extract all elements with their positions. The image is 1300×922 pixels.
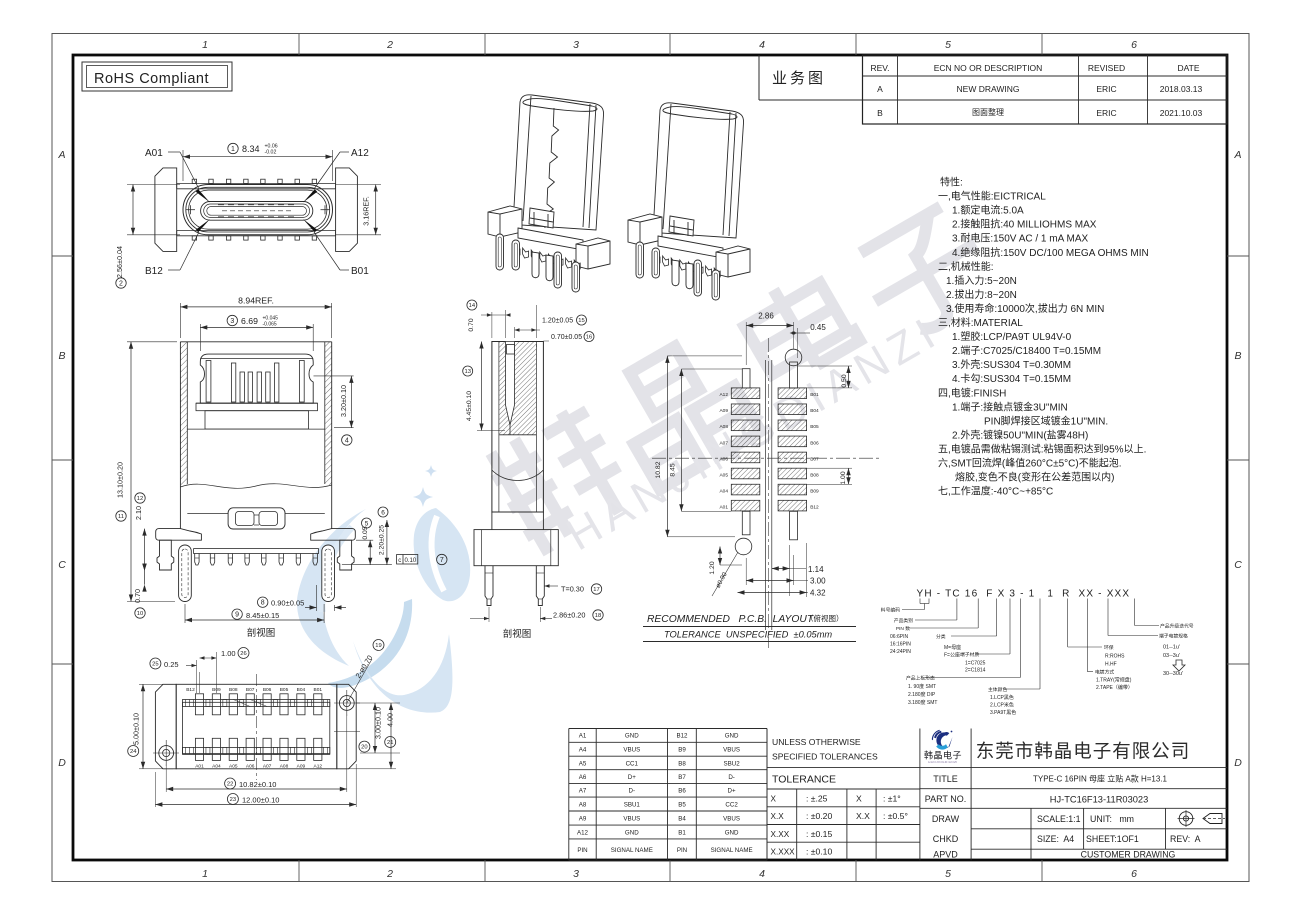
svg-text:剖视图: 剖视图 bbox=[247, 627, 276, 639]
svg-text:GND: GND bbox=[725, 829, 739, 836]
svg-text:A: A bbox=[1233, 149, 1241, 161]
svg-text:X.XXX: X.XXX bbox=[771, 848, 796, 857]
svg-text:X.XX: X.XX bbox=[771, 830, 790, 839]
svg-text:DRAW: DRAW bbox=[932, 814, 960, 824]
svg-text:SIZE: A4: SIZE: A4 bbox=[1037, 834, 1074, 844]
svg-text:01--1u': 01--1u' bbox=[1163, 645, 1180, 651]
svg-text:5.00±0.10: 5.00±0.10 bbox=[132, 713, 141, 745]
svg-text:1.TRAY(常规盘): 1.TRAY(常规盘) bbox=[1096, 677, 1132, 684]
svg-text:2.180度 DIP: 2.180度 DIP bbox=[908, 691, 936, 698]
svg-text:5: 5 bbox=[945, 868, 951, 880]
svg-text:B06: B06 bbox=[810, 440, 819, 446]
svg-text:X.X: X.X bbox=[856, 811, 870, 821]
svg-text:4: 4 bbox=[759, 868, 765, 880]
svg-text:19: 19 bbox=[375, 643, 381, 649]
svg-text:24: 24 bbox=[130, 749, 137, 755]
svg-text:B08: B08 bbox=[810, 472, 819, 478]
svg-text:A4: A4 bbox=[579, 747, 587, 754]
svg-text:1: 1 bbox=[202, 39, 208, 51]
svg-text:端子材质: 端子材质 bbox=[960, 651, 979, 658]
svg-text:APVD: APVD bbox=[933, 850, 958, 860]
svg-text:B01: B01 bbox=[314, 687, 323, 693]
svg-text:0.50: 0.50 bbox=[841, 374, 848, 387]
svg-text:电镀方式: 电镀方式 bbox=[1095, 669, 1114, 676]
svg-text:B01: B01 bbox=[351, 266, 369, 277]
svg-text:A: A bbox=[877, 84, 883, 94]
svg-text:料号编码: 料号编码 bbox=[881, 607, 900, 614]
svg-text:A08: A08 bbox=[719, 424, 728, 430]
svg-text:DATE: DATE bbox=[1177, 63, 1199, 73]
svg-text:环保: 环保 bbox=[1104, 644, 1114, 651]
svg-text:ERIC: ERIC bbox=[1096, 84, 1116, 94]
svg-text:A: A bbox=[57, 149, 65, 161]
svg-text:特性:: 特性: bbox=[940, 176, 963, 189]
svg-text:A01: A01 bbox=[145, 148, 163, 159]
svg-text:4.卡勾:SUS304 T=0.15MM: 4.卡勾:SUS304 T=0.15MM bbox=[952, 372, 1071, 385]
svg-text:PIN 数: PIN 数 bbox=[896, 625, 910, 632]
svg-text:12: 12 bbox=[137, 496, 143, 502]
svg-text:SIGNAL NAME: SIGNAL NAME bbox=[711, 847, 753, 854]
svg-text:六,SMT回流焊(峰值260°C±5°C)不能起泡.: 六,SMT回流焊(峰值260°C±5°C)不能起泡. bbox=[938, 457, 1122, 470]
svg-text:X: X bbox=[856, 794, 862, 804]
svg-text:A12: A12 bbox=[314, 764, 323, 770]
svg-text:ECN NO OR DESCRIPTION: ECN NO OR DESCRIPTION bbox=[934, 63, 1043, 73]
svg-text:REV.: REV. bbox=[870, 63, 889, 73]
svg-text:A12: A12 bbox=[719, 392, 728, 398]
svg-text:A04: A04 bbox=[212, 764, 221, 770]
svg-text:B05: B05 bbox=[280, 687, 289, 693]
svg-text:ERIC: ERIC bbox=[1096, 108, 1116, 118]
svg-text:三,材料:MATERIAL: 三,材料:MATERIAL bbox=[938, 316, 1023, 329]
svg-text:22: 22 bbox=[227, 782, 233, 788]
svg-text:2.86: 2.86 bbox=[758, 312, 774, 321]
svg-text:4: 4 bbox=[345, 438, 349, 445]
svg-text:: ±.25: : ±.25 bbox=[806, 794, 828, 804]
svg-text:15: 15 bbox=[578, 318, 584, 324]
svg-text:A6: A6 bbox=[579, 774, 587, 781]
svg-text:2.86±0.20: 2.86±0.20 bbox=[553, 611, 585, 620]
svg-text:1.塑胶:LCP/PA9T UL94V-0: 1.塑胶:LCP/PA9T UL94V-0 bbox=[952, 330, 1072, 343]
svg-text:GND: GND bbox=[625, 829, 639, 836]
svg-text:16:16PIN: 16:16PIN bbox=[890, 642, 911, 648]
svg-text:A7: A7 bbox=[579, 788, 587, 795]
svg-text:SPECIFIED TOLERANCES: SPECIFIED TOLERANCES bbox=[772, 752, 878, 762]
svg-text:SBU1: SBU1 bbox=[624, 801, 641, 808]
svg-text:CC1: CC1 bbox=[626, 760, 639, 767]
svg-text:2.端子:C7025/C18400 T=0.15MM: 2.端子:C7025/C18400 T=0.15MM bbox=[952, 344, 1101, 357]
svg-text:0.70: 0.70 bbox=[133, 589, 142, 603]
svg-text:A12: A12 bbox=[577, 829, 589, 836]
svg-text:B05: B05 bbox=[810, 424, 819, 430]
svg-text:B12: B12 bbox=[676, 733, 688, 740]
svg-text:A01: A01 bbox=[719, 505, 728, 511]
svg-text:0.45: 0.45 bbox=[810, 323, 826, 332]
svg-text:PART NO.: PART NO. bbox=[925, 794, 967, 804]
svg-text:B1: B1 bbox=[678, 829, 686, 836]
svg-text:3.16REF.: 3.16REF. bbox=[362, 196, 371, 226]
svg-text:3: 3 bbox=[230, 318, 234, 325]
svg-text:03--3u': 03--3u' bbox=[1163, 653, 1180, 659]
svg-text:主体颜色: 主体颜色 bbox=[988, 686, 1007, 693]
svg-text:1.20: 1.20 bbox=[709, 561, 716, 574]
svg-text:1. 90度 SMT: 1. 90度 SMT bbox=[908, 683, 936, 690]
svg-text:TYPE-C 16PIN 母座 立贴 A款 H=13.1: TYPE-C 16PIN 母座 立贴 A款 H=13.1 bbox=[1033, 774, 1168, 784]
svg-text:CUSTOMER DRAWING: CUSTOMER DRAWING bbox=[1081, 850, 1176, 860]
svg-text:SBU2: SBU2 bbox=[724, 760, 741, 767]
svg-text:VBUS: VBUS bbox=[623, 747, 640, 754]
svg-text:七,工作温度:-40°C~+85°C: 七,工作温度:-40°C~+85°C bbox=[938, 485, 1053, 498]
svg-text:2.外壳:镀镍50U"MIN(盐雾48H): 2.外壳:镀镍50U"MIN(盐雾48H) bbox=[952, 428, 1088, 441]
svg-text:C: C bbox=[58, 559, 66, 571]
svg-text:A06: A06 bbox=[246, 764, 255, 770]
svg-text:D-: D- bbox=[728, 774, 735, 781]
svg-text:13: 13 bbox=[464, 369, 470, 375]
svg-text:2: 2 bbox=[119, 281, 123, 288]
svg-text:HJ-TC16F13-11R03023: HJ-TC16F13-11R03023 bbox=[1050, 795, 1149, 805]
svg-text:A8: A8 bbox=[579, 801, 587, 808]
svg-text:H.HF: H.HF bbox=[1105, 662, 1117, 668]
svg-text:图面整理: 图面整理 bbox=[972, 107, 1004, 117]
svg-text:D-: D- bbox=[629, 788, 636, 795]
svg-text:TOLERANCE UNSPECIFIED ±0.05m: TOLERANCE UNSPECIFIED ±0.05mm bbox=[664, 630, 832, 640]
svg-text:产品上板形态: 产品上板形态 bbox=[906, 675, 935, 682]
svg-text:B6: B6 bbox=[678, 788, 686, 795]
svg-text:A08: A08 bbox=[280, 764, 289, 770]
svg-text:端子电镀规格: 端子电镀规格 bbox=[1159, 633, 1188, 640]
svg-text:c: c bbox=[398, 558, 401, 564]
svg-text:CHKD: CHKD bbox=[933, 834, 959, 844]
svg-text:17: 17 bbox=[593, 587, 599, 593]
svg-text:6.69: 6.69 bbox=[241, 316, 258, 326]
svg-text:3.180度 SMT: 3.180度 SMT bbox=[908, 699, 937, 706]
svg-text:B7: B7 bbox=[678, 774, 686, 781]
svg-text:D: D bbox=[58, 757, 66, 769]
svg-text:PIN: PIN bbox=[677, 847, 687, 854]
svg-text:2.20±0.25: 2.20±0.25 bbox=[379, 525, 386, 555]
svg-text:五,电镀品需做粘锡测试:粘锡面积达到95%以上.: 五,电镀品需做粘锡测试:粘锡面积达到95%以上. bbox=[938, 442, 1146, 455]
svg-text:一,电气性能:EICTRICAL: 一,电气性能:EICTRICAL bbox=[938, 190, 1046, 203]
svg-text:2=C1814: 2=C1814 bbox=[965, 668, 986, 674]
svg-text:06:6PIN: 06:6PIN bbox=[890, 634, 908, 640]
svg-text:TOLERANCE: TOLERANCE bbox=[772, 774, 836, 786]
svg-text:: ±0.10: : ±0.10 bbox=[806, 847, 832, 857]
svg-text:A09: A09 bbox=[719, 408, 728, 414]
svg-text:1.20±0.05: 1.20±0.05 bbox=[542, 318, 573, 325]
svg-text:12.00±0.10: 12.00±0.10 bbox=[242, 796, 279, 805]
svg-text:D: D bbox=[1234, 757, 1242, 769]
svg-text:产品升级迭代号: 产品升级迭代号 bbox=[1160, 623, 1194, 630]
svg-text:C: C bbox=[1234, 559, 1242, 571]
svg-text:（俯视图）: （俯视图） bbox=[806, 613, 844, 623]
svg-text:B12: B12 bbox=[810, 505, 819, 511]
svg-text:0.70±0.05: 0.70±0.05 bbox=[551, 334, 582, 341]
svg-text:: ±0.5°: : ±0.5° bbox=[883, 811, 908, 821]
svg-text:30--30u': 30--30u' bbox=[1163, 671, 1183, 677]
svg-text:B: B bbox=[877, 108, 883, 118]
svg-text:REV: A: REV: A bbox=[1170, 834, 1201, 844]
svg-text:熔胶,变色不良(变形在公差范围以内): 熔胶,变色不良(变形在公差范围以内) bbox=[955, 471, 1114, 484]
svg-text:F=公座: F=公座 bbox=[944, 652, 960, 659]
svg-text:B4: B4 bbox=[678, 815, 686, 822]
svg-text:B8: B8 bbox=[678, 760, 686, 767]
svg-text:X: X bbox=[771, 795, 777, 804]
svg-text:REVISED: REVISED bbox=[1088, 63, 1125, 73]
svg-text:RoHS Compliant: RoHS Compliant bbox=[94, 71, 209, 87]
svg-text:-0.02: -0.02 bbox=[265, 150, 277, 156]
svg-text:X.X: X.X bbox=[771, 812, 785, 821]
svg-text:GND: GND bbox=[625, 733, 639, 740]
svg-text:0.10: 0.10 bbox=[405, 558, 417, 564]
svg-text:SHEET:1OF1: SHEET:1OF1 bbox=[1086, 834, 1139, 844]
svg-text:A05: A05 bbox=[719, 472, 728, 478]
svg-text:二,机械性能:: 二,机械性能: bbox=[938, 260, 994, 273]
svg-text:4.32: 4.32 bbox=[810, 589, 826, 598]
svg-text:VBUS: VBUS bbox=[723, 747, 740, 754]
svg-text:D+: D+ bbox=[628, 774, 636, 781]
svg-text:6: 6 bbox=[1131, 39, 1137, 51]
svg-text:2: 2 bbox=[386, 39, 393, 51]
svg-text:A1: A1 bbox=[579, 733, 587, 740]
svg-text:: ±0.20: : ±0.20 bbox=[806, 811, 832, 821]
svg-text:6: 6 bbox=[381, 509, 385, 516]
svg-text:1.14: 1.14 bbox=[808, 565, 824, 574]
svg-text:21: 21 bbox=[387, 740, 393, 746]
svg-text:B: B bbox=[1234, 350, 1241, 362]
svg-text:8.45±0.15: 8.45±0.15 bbox=[246, 611, 279, 620]
svg-text:4.绝缘阻抗:150V DC/100 MEGA OHMS M: 4.绝缘阻抗:150V DC/100 MEGA OHMS MIN bbox=[952, 246, 1149, 259]
svg-text:26: 26 bbox=[240, 651, 246, 657]
svg-text:B04: B04 bbox=[810, 408, 819, 414]
svg-text:B07: B07 bbox=[246, 687, 255, 693]
svg-text:1=C7025: 1=C7025 bbox=[965, 661, 986, 667]
svg-text:B06: B06 bbox=[263, 687, 272, 693]
svg-text:2.接触阻抗:40 MILLIOHMS MAX: 2.接触阻抗:40 MILLIOHMS MAX bbox=[952, 218, 1097, 231]
svg-text:A04: A04 bbox=[719, 488, 728, 494]
svg-text:3: 3 bbox=[573, 39, 579, 51]
svg-text:2.TAPE（编带）: 2.TAPE（编带） bbox=[1096, 684, 1133, 691]
svg-text:10.82±0.10: 10.82±0.10 bbox=[239, 780, 276, 789]
svg-text:18: 18 bbox=[595, 613, 601, 619]
svg-text:8.45: 8.45 bbox=[670, 463, 677, 476]
svg-text:23: 23 bbox=[230, 797, 236, 803]
svg-text:UNIT: mm: UNIT: mm bbox=[1090, 814, 1134, 824]
svg-text:VBUS: VBUS bbox=[723, 815, 740, 822]
svg-text:0.25: 0.25 bbox=[164, 660, 179, 669]
svg-text:: ±0.15: : ±0.15 bbox=[806, 829, 832, 839]
svg-text:HANJINGDIANZI: HANJINGDIANZI bbox=[928, 760, 958, 764]
svg-text:4: 4 bbox=[759, 39, 765, 51]
svg-text:1.00: 1.00 bbox=[221, 649, 236, 658]
svg-text:产品类别: 产品类别 bbox=[894, 617, 913, 624]
svg-text:RECOMMENDED P.C.B. LAYOUT: RECOMMENDED P.C.B. LAYOUT bbox=[647, 614, 814, 625]
svg-text:6: 6 bbox=[1131, 868, 1137, 880]
svg-text:A5: A5 bbox=[579, 760, 587, 767]
svg-text:分类: 分类 bbox=[936, 633, 946, 640]
svg-text:3: 3 bbox=[573, 868, 579, 880]
svg-text:B9: B9 bbox=[678, 747, 686, 754]
svg-text:SCALE:1:1: SCALE:1:1 bbox=[1037, 814, 1081, 824]
svg-text:3.使用寿命:10000次,拔出力 6N MIN: 3.使用寿命:10000次,拔出力 6N MIN bbox=[946, 302, 1104, 315]
svg-text:8: 8 bbox=[261, 600, 265, 607]
svg-text:B04: B04 bbox=[297, 687, 306, 693]
svg-text:剖视图: 剖视图 bbox=[503, 628, 532, 640]
svg-text:1.额定电流:5.0A: 1.额定电流:5.0A bbox=[952, 204, 1024, 217]
svg-text:B07: B07 bbox=[810, 456, 819, 462]
svg-text:13.10±0.20: 13.10±0.20 bbox=[116, 462, 125, 498]
svg-text:24:24PIN: 24:24PIN bbox=[890, 649, 911, 655]
svg-text:1.LCP黑色: 1.LCP黑色 bbox=[990, 694, 1014, 701]
svg-text:3.00: 3.00 bbox=[810, 577, 826, 586]
svg-text:4.45±0.10: 4.45±0.10 bbox=[466, 391, 473, 421]
svg-text:东莞市韩晶电子有限公司: 东莞市韩晶电子有限公司 bbox=[976, 741, 1191, 762]
svg-text:1.00: 1.00 bbox=[840, 471, 847, 484]
svg-text:5: 5 bbox=[365, 520, 369, 527]
svg-text:16: 16 bbox=[586, 335, 592, 341]
svg-text:9: 9 bbox=[235, 612, 239, 619]
svg-text:D+: D+ bbox=[728, 788, 736, 795]
svg-text:10: 10 bbox=[137, 611, 143, 617]
svg-text:2021.10.03: 2021.10.03 bbox=[1160, 108, 1203, 118]
svg-text:5: 5 bbox=[945, 39, 951, 51]
svg-text:2: 2 bbox=[386, 868, 393, 880]
svg-text:YH - TC 16 F X 3 - 1 1 R: YH - TC 16 F X 3 - 1 1 R XX - XXX bbox=[917, 589, 1131, 600]
svg-text:B: B bbox=[58, 350, 65, 362]
svg-text:0.70: 0.70 bbox=[468, 318, 475, 331]
svg-text:14: 14 bbox=[469, 303, 476, 309]
svg-text:8.94REF.: 8.94REF. bbox=[238, 296, 274, 306]
svg-text:M=母座: M=母座 bbox=[944, 644, 961, 651]
svg-text:2.拔出力:8~20N: 2.拔出力:8~20N bbox=[946, 288, 1017, 301]
svg-text:PIN脚焊接区域镀金1U"MIN.: PIN脚焊接区域镀金1U"MIN. bbox=[984, 414, 1108, 427]
svg-text:A06: A06 bbox=[719, 456, 728, 462]
svg-text:2.10: 2.10 bbox=[134, 506, 143, 520]
svg-text:A05: A05 bbox=[229, 764, 238, 770]
svg-text:B12: B12 bbox=[145, 266, 163, 277]
svg-text:A07: A07 bbox=[719, 440, 728, 446]
svg-text:3.20±0.10: 3.20±0.10 bbox=[339, 385, 348, 417]
svg-text:A12: A12 bbox=[351, 148, 369, 159]
svg-text:1: 1 bbox=[202, 868, 208, 880]
svg-text:3.耐电压:150V AC / 1 mA MAX: 3.耐电压:150V AC / 1 mA MAX bbox=[952, 232, 1088, 245]
svg-text:B01: B01 bbox=[810, 392, 819, 398]
svg-text:3.外壳:SUS304 T=0.30MM: 3.外壳:SUS304 T=0.30MM bbox=[952, 358, 1071, 371]
svg-text:B09: B09 bbox=[810, 488, 819, 494]
svg-text:A9: A9 bbox=[579, 815, 587, 822]
svg-text:T=0.30: T=0.30 bbox=[561, 585, 584, 594]
svg-text:B5: B5 bbox=[678, 801, 686, 808]
svg-text:CC2: CC2 bbox=[725, 801, 738, 808]
svg-text:11: 11 bbox=[118, 514, 124, 520]
svg-text:UNLESS OTHERWISE: UNLESS OTHERWISE bbox=[772, 737, 861, 747]
svg-text:B08: B08 bbox=[229, 687, 238, 693]
svg-text:1: 1 bbox=[231, 146, 235, 153]
svg-text:25: 25 bbox=[152, 662, 158, 668]
svg-text:四,电镀:FINISH: 四,电镀:FINISH bbox=[938, 386, 1006, 399]
svg-text:2.LCP米色: 2.LCP米色 bbox=[990, 702, 1014, 709]
svg-text:TITLE: TITLE bbox=[933, 774, 958, 784]
svg-text:A01: A01 bbox=[195, 764, 204, 770]
svg-text:SIGNAL NAME: SIGNAL NAME bbox=[611, 847, 653, 854]
svg-text:-0.065: -0.065 bbox=[263, 322, 277, 328]
svg-text:4.00: 4.00 bbox=[386, 713, 395, 727]
svg-text:3.PA9T黑色: 3.PA9T黑色 bbox=[990, 709, 1016, 716]
svg-text:7: 7 bbox=[440, 557, 444, 564]
svg-text:: ±1°: : ±1° bbox=[883, 794, 901, 804]
svg-text:0.90±0.05: 0.90±0.05 bbox=[271, 599, 304, 608]
svg-text:A09: A09 bbox=[297, 764, 306, 770]
svg-text:2018.03.13: 2018.03.13 bbox=[1160, 84, 1203, 94]
svg-text:B12: B12 bbox=[186, 687, 195, 693]
svg-text:8.34: 8.34 bbox=[242, 144, 260, 154]
svg-text:PIN: PIN bbox=[577, 847, 587, 854]
svg-text:NEW DRAWING: NEW DRAWING bbox=[957, 84, 1020, 94]
svg-text:10.82: 10.82 bbox=[655, 461, 662, 478]
svg-text:VBUS: VBUS bbox=[623, 815, 640, 822]
svg-text:1.端子:接触点镀金3U"MIN: 1.端子:接触点镀金3U"MIN bbox=[952, 400, 1068, 413]
svg-text:A07: A07 bbox=[263, 764, 272, 770]
svg-text:R:ROHS: R:ROHS bbox=[1105, 654, 1125, 660]
svg-text:GND: GND bbox=[725, 733, 739, 740]
svg-text:2.56±0.04: 2.56±0.04 bbox=[115, 246, 124, 278]
svg-text:1.插入力:5~20N: 1.插入力:5~20N bbox=[946, 274, 1017, 287]
svg-text:20: 20 bbox=[361, 745, 367, 751]
svg-text:业务图: 业务图 bbox=[772, 70, 826, 87]
